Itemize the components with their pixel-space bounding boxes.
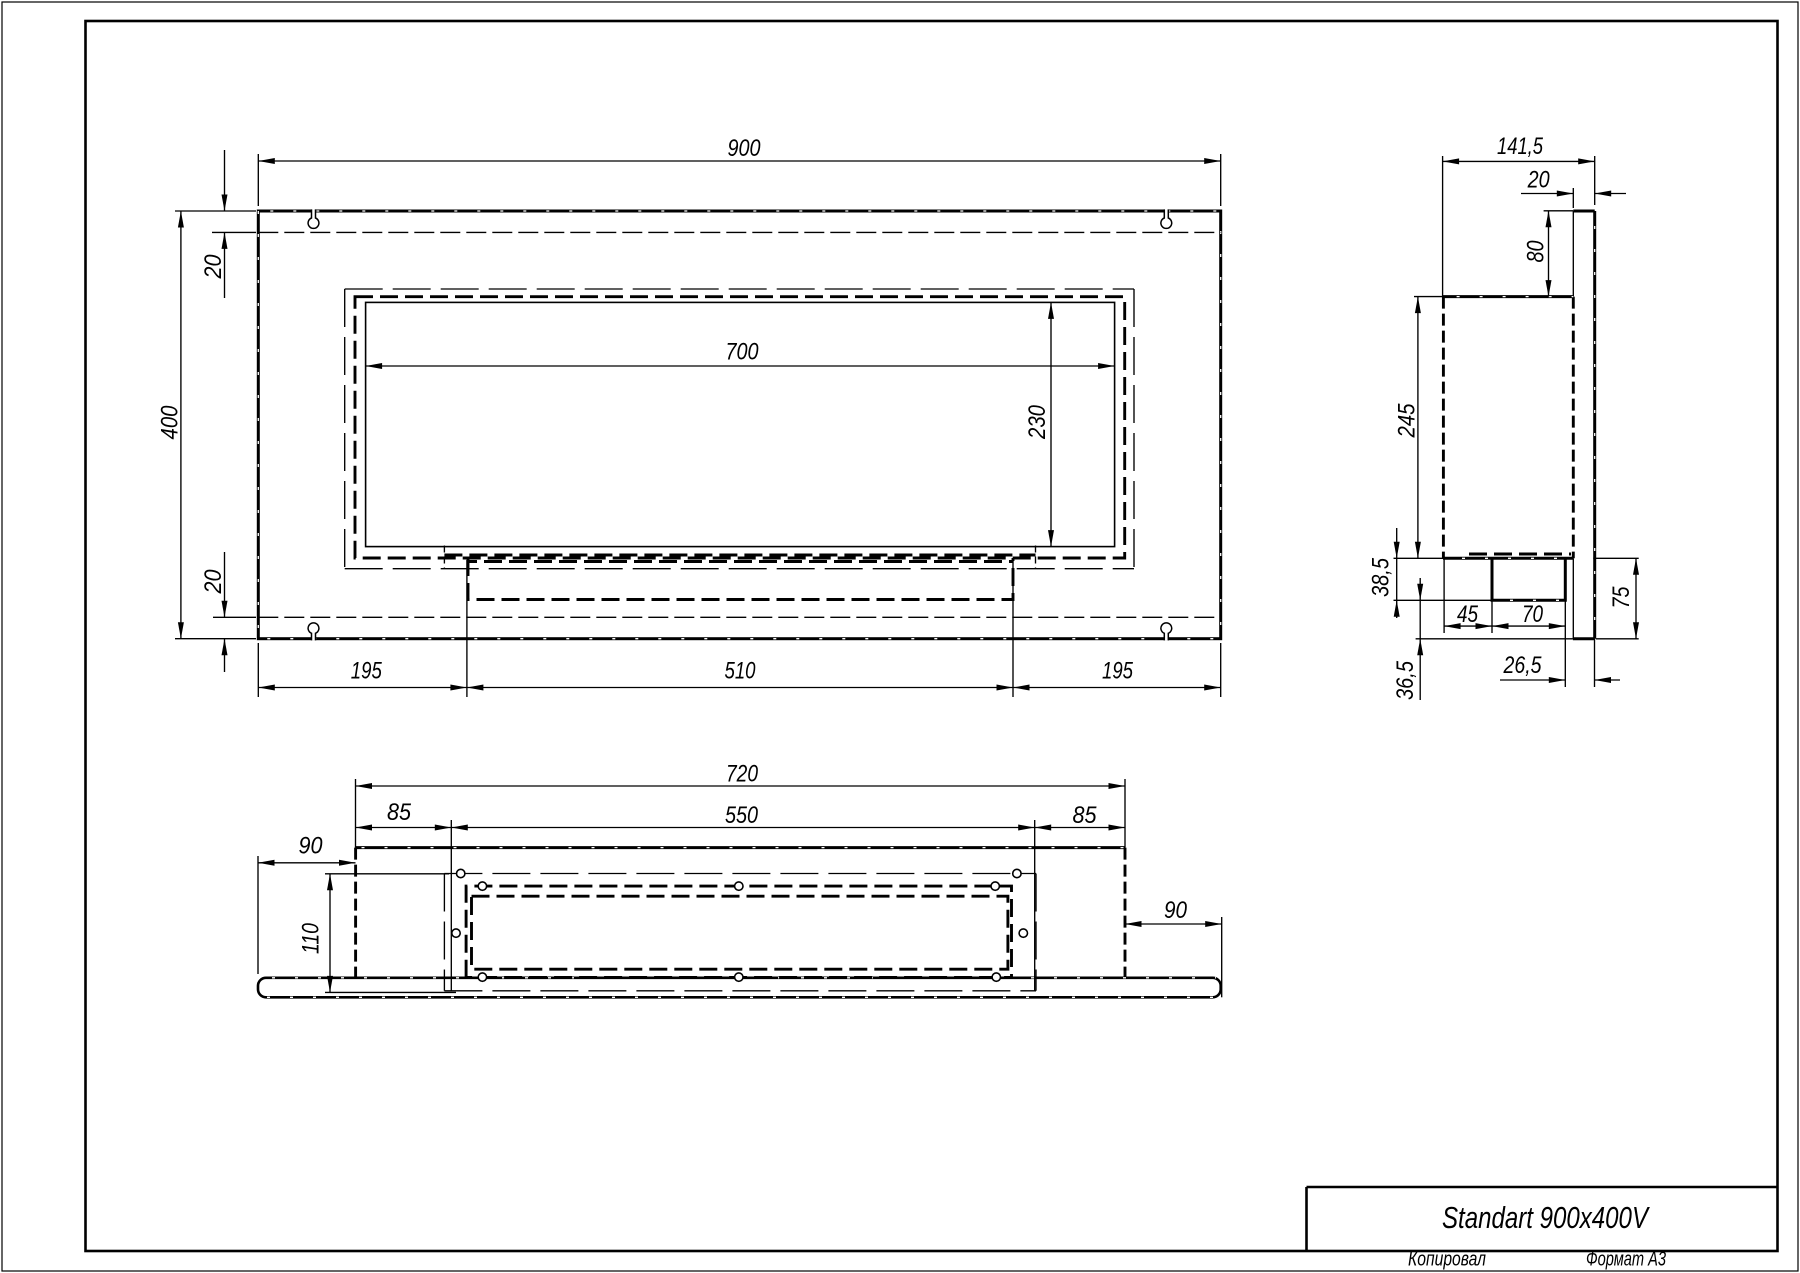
svg-text:85: 85 bbox=[387, 799, 412, 826]
svg-text:720: 720 bbox=[726, 760, 759, 787]
svg-text:38,5: 38,5 bbox=[1367, 557, 1394, 597]
svg-text:110: 110 bbox=[297, 922, 324, 954]
svg-text:230: 230 bbox=[1024, 404, 1051, 439]
svg-text:Standart 900x400V: Standart 900x400V bbox=[1442, 1200, 1651, 1235]
svg-text:245: 245 bbox=[1393, 403, 1420, 438]
svg-text:141,5: 141,5 bbox=[1497, 133, 1543, 160]
svg-text:20: 20 bbox=[200, 254, 227, 279]
svg-text:80: 80 bbox=[1522, 240, 1549, 263]
svg-text:85: 85 bbox=[1073, 802, 1098, 829]
svg-text:70: 70 bbox=[1522, 601, 1544, 628]
svg-text:45: 45 bbox=[1457, 601, 1479, 628]
svg-text:700: 700 bbox=[726, 338, 760, 365]
svg-text:90: 90 bbox=[299, 832, 324, 859]
svg-text:510: 510 bbox=[725, 657, 757, 684]
svg-text:Формат А3: Формат А3 bbox=[1586, 1248, 1666, 1270]
svg-text:195: 195 bbox=[351, 657, 383, 684]
svg-text:75: 75 bbox=[1608, 586, 1635, 609]
svg-text:400: 400 bbox=[156, 405, 183, 440]
svg-text:550: 550 bbox=[725, 802, 759, 829]
svg-text:195: 195 bbox=[1102, 657, 1134, 684]
svg-text:Копировал: Копировал bbox=[1408, 1248, 1486, 1270]
svg-text:26,5: 26,5 bbox=[1503, 652, 1542, 679]
svg-text:900: 900 bbox=[728, 135, 762, 162]
svg-text:90: 90 bbox=[1164, 897, 1188, 924]
svg-text:36,5: 36,5 bbox=[1392, 660, 1419, 700]
svg-text:20: 20 bbox=[200, 569, 227, 594]
svg-text:20: 20 bbox=[1527, 166, 1550, 193]
